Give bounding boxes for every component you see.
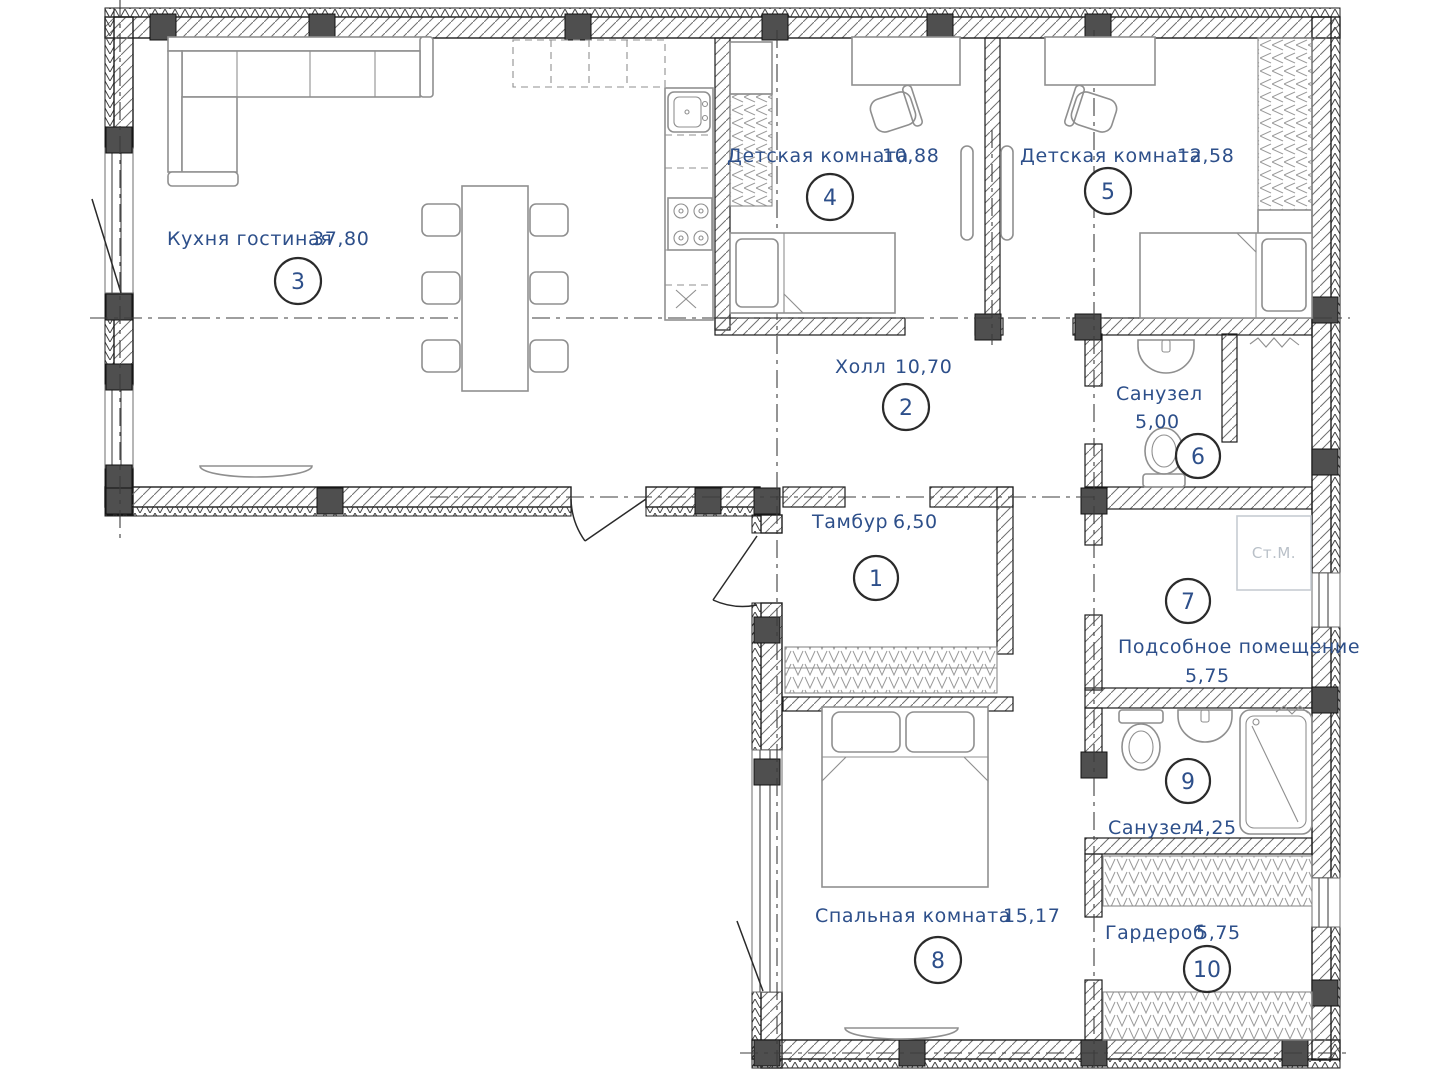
room-label-6: Санузел 5,00 6 <box>1116 383 1220 478</box>
desk-chair <box>1064 84 1121 138</box>
room-name: Холл <box>835 356 886 378</box>
room-label-2: Холл 10,70 2 <box>835 356 952 430</box>
toilet <box>1119 710 1163 770</box>
stove <box>668 198 712 250</box>
room-label-3: Кухня гостиная 37,80 3 <box>167 228 369 304</box>
window-bedroom <box>737 750 782 992</box>
room4-furniture <box>730 37 960 313</box>
room-area: 10,70 <box>895 356 952 378</box>
room5-furniture <box>1045 37 1312 318</box>
room-label-8: Спальная комната 15,17 8 <box>815 905 1060 983</box>
room-number: 10 <box>1193 958 1221 983</box>
room-name: Кухня гостиная <box>167 228 332 250</box>
dining-table <box>422 186 568 391</box>
room-number: 5 <box>1101 180 1115 205</box>
bathroom9-fixtures <box>1119 706 1312 834</box>
utility-room: Ст.М. <box>1237 516 1311 590</box>
sofa <box>168 37 433 186</box>
radiator-living <box>200 466 312 477</box>
room-number: 9 <box>1181 770 1195 795</box>
room-area: 37,80 <box>312 228 369 250</box>
room-number: 3 <box>291 270 305 295</box>
desk-chair <box>867 84 924 138</box>
kitchen-sink <box>668 92 710 132</box>
room-area: 15,17 <box>1003 905 1060 927</box>
floor-plan: Ст.М. Кухня гостиная 37,80 3 <box>0 0 1440 1080</box>
room-number: 1 <box>869 567 883 592</box>
shower <box>1240 706 1312 834</box>
room-label-5: Детская комната 12,58 5 <box>1020 145 1234 214</box>
room-number: 2 <box>899 396 913 421</box>
room-name: Санузел <box>1116 383 1203 405</box>
bedroom-furniture <box>822 707 988 1039</box>
sink <box>1178 710 1232 742</box>
room-number: 6 <box>1191 445 1205 470</box>
room-area: 10,88 <box>882 145 939 167</box>
sink <box>1138 340 1194 373</box>
room-number: 4 <box>823 186 837 211</box>
room-number: 7 <box>1181 590 1195 615</box>
tambur-wardrobe <box>785 647 997 693</box>
room-area: 5,75 <box>1185 665 1230 687</box>
room-area: 12,58 <box>1177 145 1234 167</box>
room-area: 4,25 <box>1192 817 1237 839</box>
room-area: 5,00 <box>1135 411 1180 433</box>
room-name: Гардероб <box>1105 922 1205 944</box>
radiator-bedroom <box>845 1028 958 1039</box>
room-number: 8 <box>931 949 945 974</box>
room-area: 6,50 <box>893 511 938 533</box>
room-area: 5,75 <box>1196 922 1241 944</box>
window-right-2 <box>1312 878 1340 927</box>
room-label-1: Тамбур 6,50 1 <box>811 511 938 600</box>
room-name: Спальная комната <box>815 905 1011 927</box>
room-name: Санузел <box>1108 817 1195 839</box>
room-name: Детская комната <box>1020 145 1202 167</box>
washing-machine-label: Ст.М. <box>1252 544 1296 562</box>
sliding-door-room4 <box>961 146 973 240</box>
terrace-door <box>571 499 646 541</box>
sliding-door-room5 <box>1001 146 1013 240</box>
window-right-1 <box>1312 573 1340 627</box>
window-left-2 <box>105 385 133 468</box>
room-name: Тамбур <box>811 511 888 533</box>
window-left-1 <box>92 148 133 293</box>
room-name: Подсобное помещение <box>1118 636 1360 658</box>
room-label-10: Гардероб 5,75 10 <box>1105 922 1241 992</box>
towel-rail <box>1250 338 1299 347</box>
room-label-9: 9 Санузел 4,25 <box>1108 759 1237 839</box>
entrance-door <box>713 536 757 606</box>
